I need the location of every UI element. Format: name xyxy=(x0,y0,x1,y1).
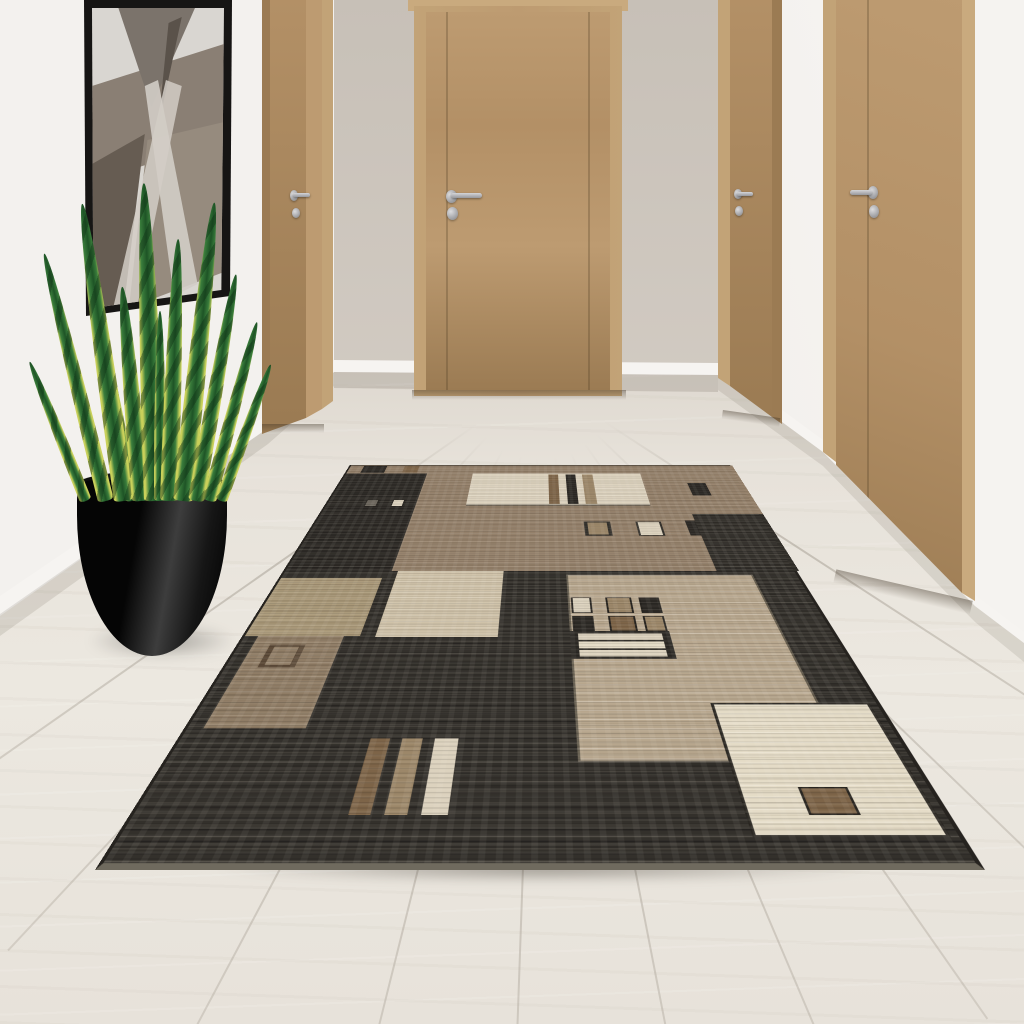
rug-block-cream-left xyxy=(375,571,504,637)
rug-panel-stripe-brown xyxy=(548,475,559,504)
rug-square-taupe xyxy=(643,616,668,631)
rug-stripe-cream xyxy=(421,738,459,815)
rug-panel-stripe-dark xyxy=(566,475,579,504)
rug-bar-cream xyxy=(579,650,668,657)
rug-square-brown xyxy=(608,616,638,631)
rug-square-dark xyxy=(572,616,595,631)
rug-square-cream xyxy=(635,522,665,536)
center-door xyxy=(414,0,622,402)
right-door-far-stile xyxy=(867,0,869,612)
right-door-far-slab xyxy=(823,0,975,612)
right-door-near xyxy=(718,0,784,432)
rug-square-outlined xyxy=(584,522,613,536)
center-door-shadow xyxy=(412,390,626,400)
right-door-far-handle-icon xyxy=(850,190,872,195)
snake-plant xyxy=(70,175,250,501)
rug-square-brown xyxy=(402,466,419,472)
left-door-handle-icon xyxy=(293,193,310,197)
rug-square-taupe xyxy=(605,597,634,612)
rug-square-dark xyxy=(638,597,663,612)
rug-bar-cream xyxy=(578,634,663,640)
rug-square-cream xyxy=(571,597,593,612)
right-door-near-handle-icon xyxy=(737,192,753,196)
rug-panel-stripe-taupe xyxy=(582,475,598,504)
left-door-shadow xyxy=(262,424,324,433)
rug-panel-cream xyxy=(466,473,651,505)
rug-square-brown xyxy=(798,787,861,815)
rug-bar-cream xyxy=(579,641,666,648)
left-door-keyhole xyxy=(292,208,300,218)
center-door-stile xyxy=(588,12,590,390)
rug-stripe-taupe xyxy=(384,738,423,815)
center-door-handle-icon xyxy=(451,193,482,198)
rug-stripe-brown xyxy=(348,738,390,815)
rug-square-cream xyxy=(390,500,406,507)
center-door-keyhole xyxy=(447,207,458,220)
hallway-scene xyxy=(0,0,1024,1024)
right-door-far xyxy=(823,0,975,612)
right-door-far-keyhole xyxy=(869,205,879,218)
right-door-near-keyhole xyxy=(735,206,743,216)
left-door xyxy=(262,0,335,436)
rug-square-dark xyxy=(360,466,387,473)
